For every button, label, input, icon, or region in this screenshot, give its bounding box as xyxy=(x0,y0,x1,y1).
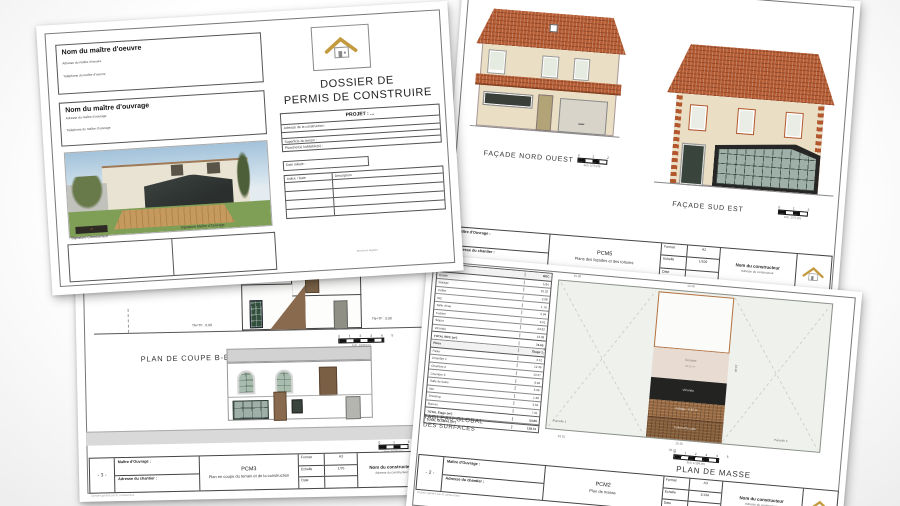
signature-box-ouvrage xyxy=(172,233,277,275)
dim-label: 10.46 xyxy=(687,284,695,289)
facade-se-drawing xyxy=(659,42,838,203)
dim-label: 18.15 xyxy=(557,434,565,439)
page-number: - 2 - xyxy=(416,455,444,491)
dim-label: 10.15 xyxy=(675,441,683,446)
window xyxy=(488,50,506,73)
arched-window xyxy=(237,370,255,394)
footer-note: Dossier généré par le constructeur xyxy=(91,493,134,498)
side-door xyxy=(345,396,360,419)
storefront-glazing xyxy=(233,400,269,420)
maitre-oeuvre-phone: Téléphone du maître d'oeuvre xyxy=(63,63,257,79)
site-address-label: Adresse du chantier : xyxy=(115,474,199,492)
date-row: Date xyxy=(299,476,357,488)
document-collage: Nom du maître d'oeuvre Adresse du maître… xyxy=(0,0,900,506)
attic-vent xyxy=(549,24,558,33)
dim-label: 15.30 xyxy=(573,274,581,279)
sheet-description: Plan de masse xyxy=(589,488,616,495)
titleblock-title: PCM3 Plan en coupe du terrain et de la c… xyxy=(199,454,299,490)
dim-label: 27.46 xyxy=(542,348,547,356)
photo-window xyxy=(207,163,220,174)
section-window xyxy=(249,300,263,328)
sheet-description: Plan en coupe du terrain et de la constr… xyxy=(209,473,290,480)
garden-area xyxy=(654,291,735,353)
maitre-ouvrage-phone: Téléphone du maître d'ouvrage xyxy=(66,116,260,132)
window-brick-surround xyxy=(688,104,708,131)
revisions-col-description: Description xyxy=(333,172,354,179)
window xyxy=(574,59,590,80)
signature-box-constructeur xyxy=(68,239,174,281)
titleblock-meta: FormatA3 Echelle1/134 Date xyxy=(661,476,723,506)
page-number: - 3 - xyxy=(90,458,116,493)
tn-right-label: TN=TF : 0.00 xyxy=(372,316,392,320)
small-window xyxy=(292,399,303,413)
titleblock-meta: FormatA3 Echelle1/75 Date xyxy=(299,453,359,488)
center-door xyxy=(273,392,287,421)
titleblock-logo xyxy=(801,489,838,506)
coupe-label: PLAN DE COUPE B-B xyxy=(141,353,230,364)
titleblock-coupe: - 3 - Maître d'Ouvrage : Adresse du chan… xyxy=(89,450,462,494)
tn-left-label: TN=TF : 0.00 xyxy=(192,323,212,327)
lower-door xyxy=(333,300,348,329)
garage-door xyxy=(558,98,609,136)
owner-label: Maître d'Ouvrage : xyxy=(115,456,199,475)
entry-door xyxy=(536,94,554,131)
window-brick-surround xyxy=(784,112,804,139)
dim-label: 13.34 xyxy=(734,364,739,372)
company-logo-box xyxy=(311,24,372,71)
parcel: Terrasse 30.20 m² Véranda Faîtage : 6.40… xyxy=(545,279,833,452)
sheet-code: PCM3 xyxy=(241,466,256,472)
titleblock-client: Maître d'Ouvrage : Adresse du chantier : xyxy=(115,456,200,492)
photo-bush xyxy=(70,175,104,211)
surface-table: Pièce RDC Entrée5.84 Garage15.32 Cellier… xyxy=(423,263,553,434)
window-brick-surround xyxy=(736,108,756,135)
surface-rows-rdc: Entrée5.84 Garage15.32 Cellier3.08 WC1.7… xyxy=(432,271,551,340)
sheet-description: Plans des façades et des toitures xyxy=(575,256,634,266)
upper-door xyxy=(319,367,338,396)
cover-sheet: Nom du maître d'oeuvre Adresse du maître… xyxy=(36,1,464,296)
photo-cypress xyxy=(235,151,252,200)
surface-rows-etage: Palier4.12 Chambre 112.46 Chambre 210.57… xyxy=(426,347,545,416)
main-roof: Faîtage : 6.40 m Tuiles terre cuite xyxy=(646,399,725,443)
house-logo-icon xyxy=(320,31,362,63)
facade-nw-drawing xyxy=(469,7,629,150)
photo-window xyxy=(171,165,184,176)
elevation-drawing xyxy=(226,346,373,433)
masse-sheet: Pièce RDC Entrée5.84 Garage15.32 Cellier… xyxy=(406,254,863,506)
house-logo-icon xyxy=(806,496,834,506)
window xyxy=(542,57,559,78)
arched-window xyxy=(275,369,293,393)
sheet-code: PCM5 xyxy=(597,250,613,257)
house-logo-icon xyxy=(800,263,827,284)
facade-nw-scalebar: 0 1 2 Ech. 1/75 (m) xyxy=(577,154,608,169)
glass-door xyxy=(680,144,705,186)
facade-se-scalebar: 0 1 2 Ech. 1/75 (m) xyxy=(777,205,808,220)
